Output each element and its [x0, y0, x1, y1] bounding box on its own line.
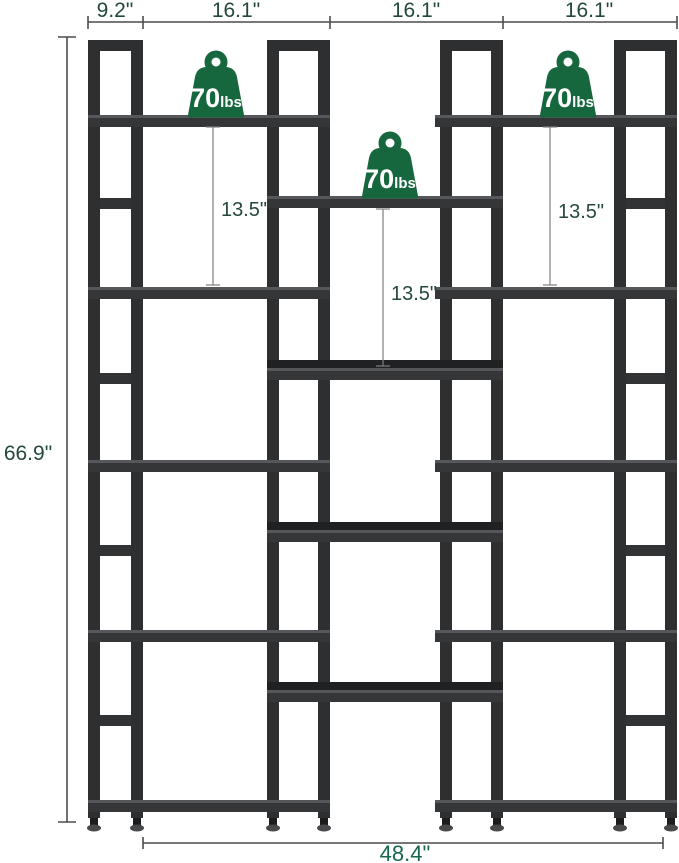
total-width-label: 48.4" — [380, 841, 431, 863]
frame-rung — [626, 373, 665, 384]
frame-rung — [626, 715, 665, 726]
frame-rung — [626, 545, 665, 556]
frame-right — [613, 40, 678, 832]
weight-capacity-icon: 70lbs — [362, 135, 419, 199]
frame-feet — [87, 818, 144, 832]
frame-post — [665, 40, 677, 818]
shelf-board — [435, 287, 677, 299]
bay-width-label: 16.1" — [392, 0, 440, 22]
frame-feet — [439, 818, 504, 832]
frame-post — [88, 40, 100, 818]
frame-top-bar — [614, 40, 677, 51]
shelf-spacing-label: 13.5" — [391, 283, 437, 305]
shelf-board — [88, 800, 330, 812]
frame-mid-left — [266, 40, 331, 832]
height-dimension-label: 66.9" — [4, 442, 52, 465]
shelf-board — [435, 800, 677, 812]
shelf-board — [88, 460, 330, 472]
height-dimension: 66.9" — [4, 37, 76, 822]
frame-rung — [100, 715, 131, 726]
frame-rung — [100, 198, 131, 209]
bookshelf-dimension-diagram: 70lbs 70lbs 70lbs 9.2" 16.1" 16.1" 16.1"… — [0, 0, 679, 863]
frame-feet — [613, 818, 678, 832]
frame-top-bar — [440, 40, 503, 51]
frame-rung — [626, 198, 665, 209]
shelf-spacing-right: 13.5" — [543, 127, 604, 285]
shelves-middle-bay — [267, 196, 503, 702]
frame-feet — [266, 818, 331, 832]
shelf-spacing-label: 13.5" — [558, 201, 604, 223]
frame-post — [614, 40, 626, 818]
diagram-stage: 70lbs 70lbs 70lbs 9.2" 16.1" 16.1" 16.1"… — [0, 0, 679, 863]
bottom-dimension: 48.4" — [143, 837, 663, 863]
shelf-board — [267, 682, 503, 702]
frame-rung — [100, 373, 131, 384]
frame-top-bar — [267, 40, 330, 51]
bay-width-label: 16.1" — [565, 0, 613, 22]
frame-rung — [100, 545, 131, 556]
depth-dimension-label: 9.2" — [97, 0, 134, 22]
shelf-board — [88, 287, 330, 299]
frame-left — [87, 40, 144, 832]
shelf-board — [267, 522, 503, 542]
shelf-board — [267, 360, 503, 380]
frame-mid-right — [439, 40, 504, 832]
weight-capacity-icon: 70lbs — [188, 54, 245, 118]
shelf-spacing-middle: 13.5" — [376, 209, 437, 366]
top-dimension: 9.2" 16.1" 16.1" 16.1" — [88, 0, 677, 29]
shelves-left-bay — [88, 115, 330, 812]
shelf-spacing-label: 13.5" — [221, 199, 267, 221]
shelf-board — [88, 630, 330, 642]
shelf-board — [435, 630, 677, 642]
weight-capacity-icon: 70lbs — [540, 54, 597, 118]
bay-width-label: 16.1" — [212, 0, 260, 22]
frame-top-bar — [88, 40, 143, 51]
shelves-right-bay — [435, 115, 677, 812]
shelf-spacing-left: 13.5" — [206, 127, 267, 285]
shelf-board — [435, 460, 677, 472]
frame-post — [131, 40, 143, 818]
